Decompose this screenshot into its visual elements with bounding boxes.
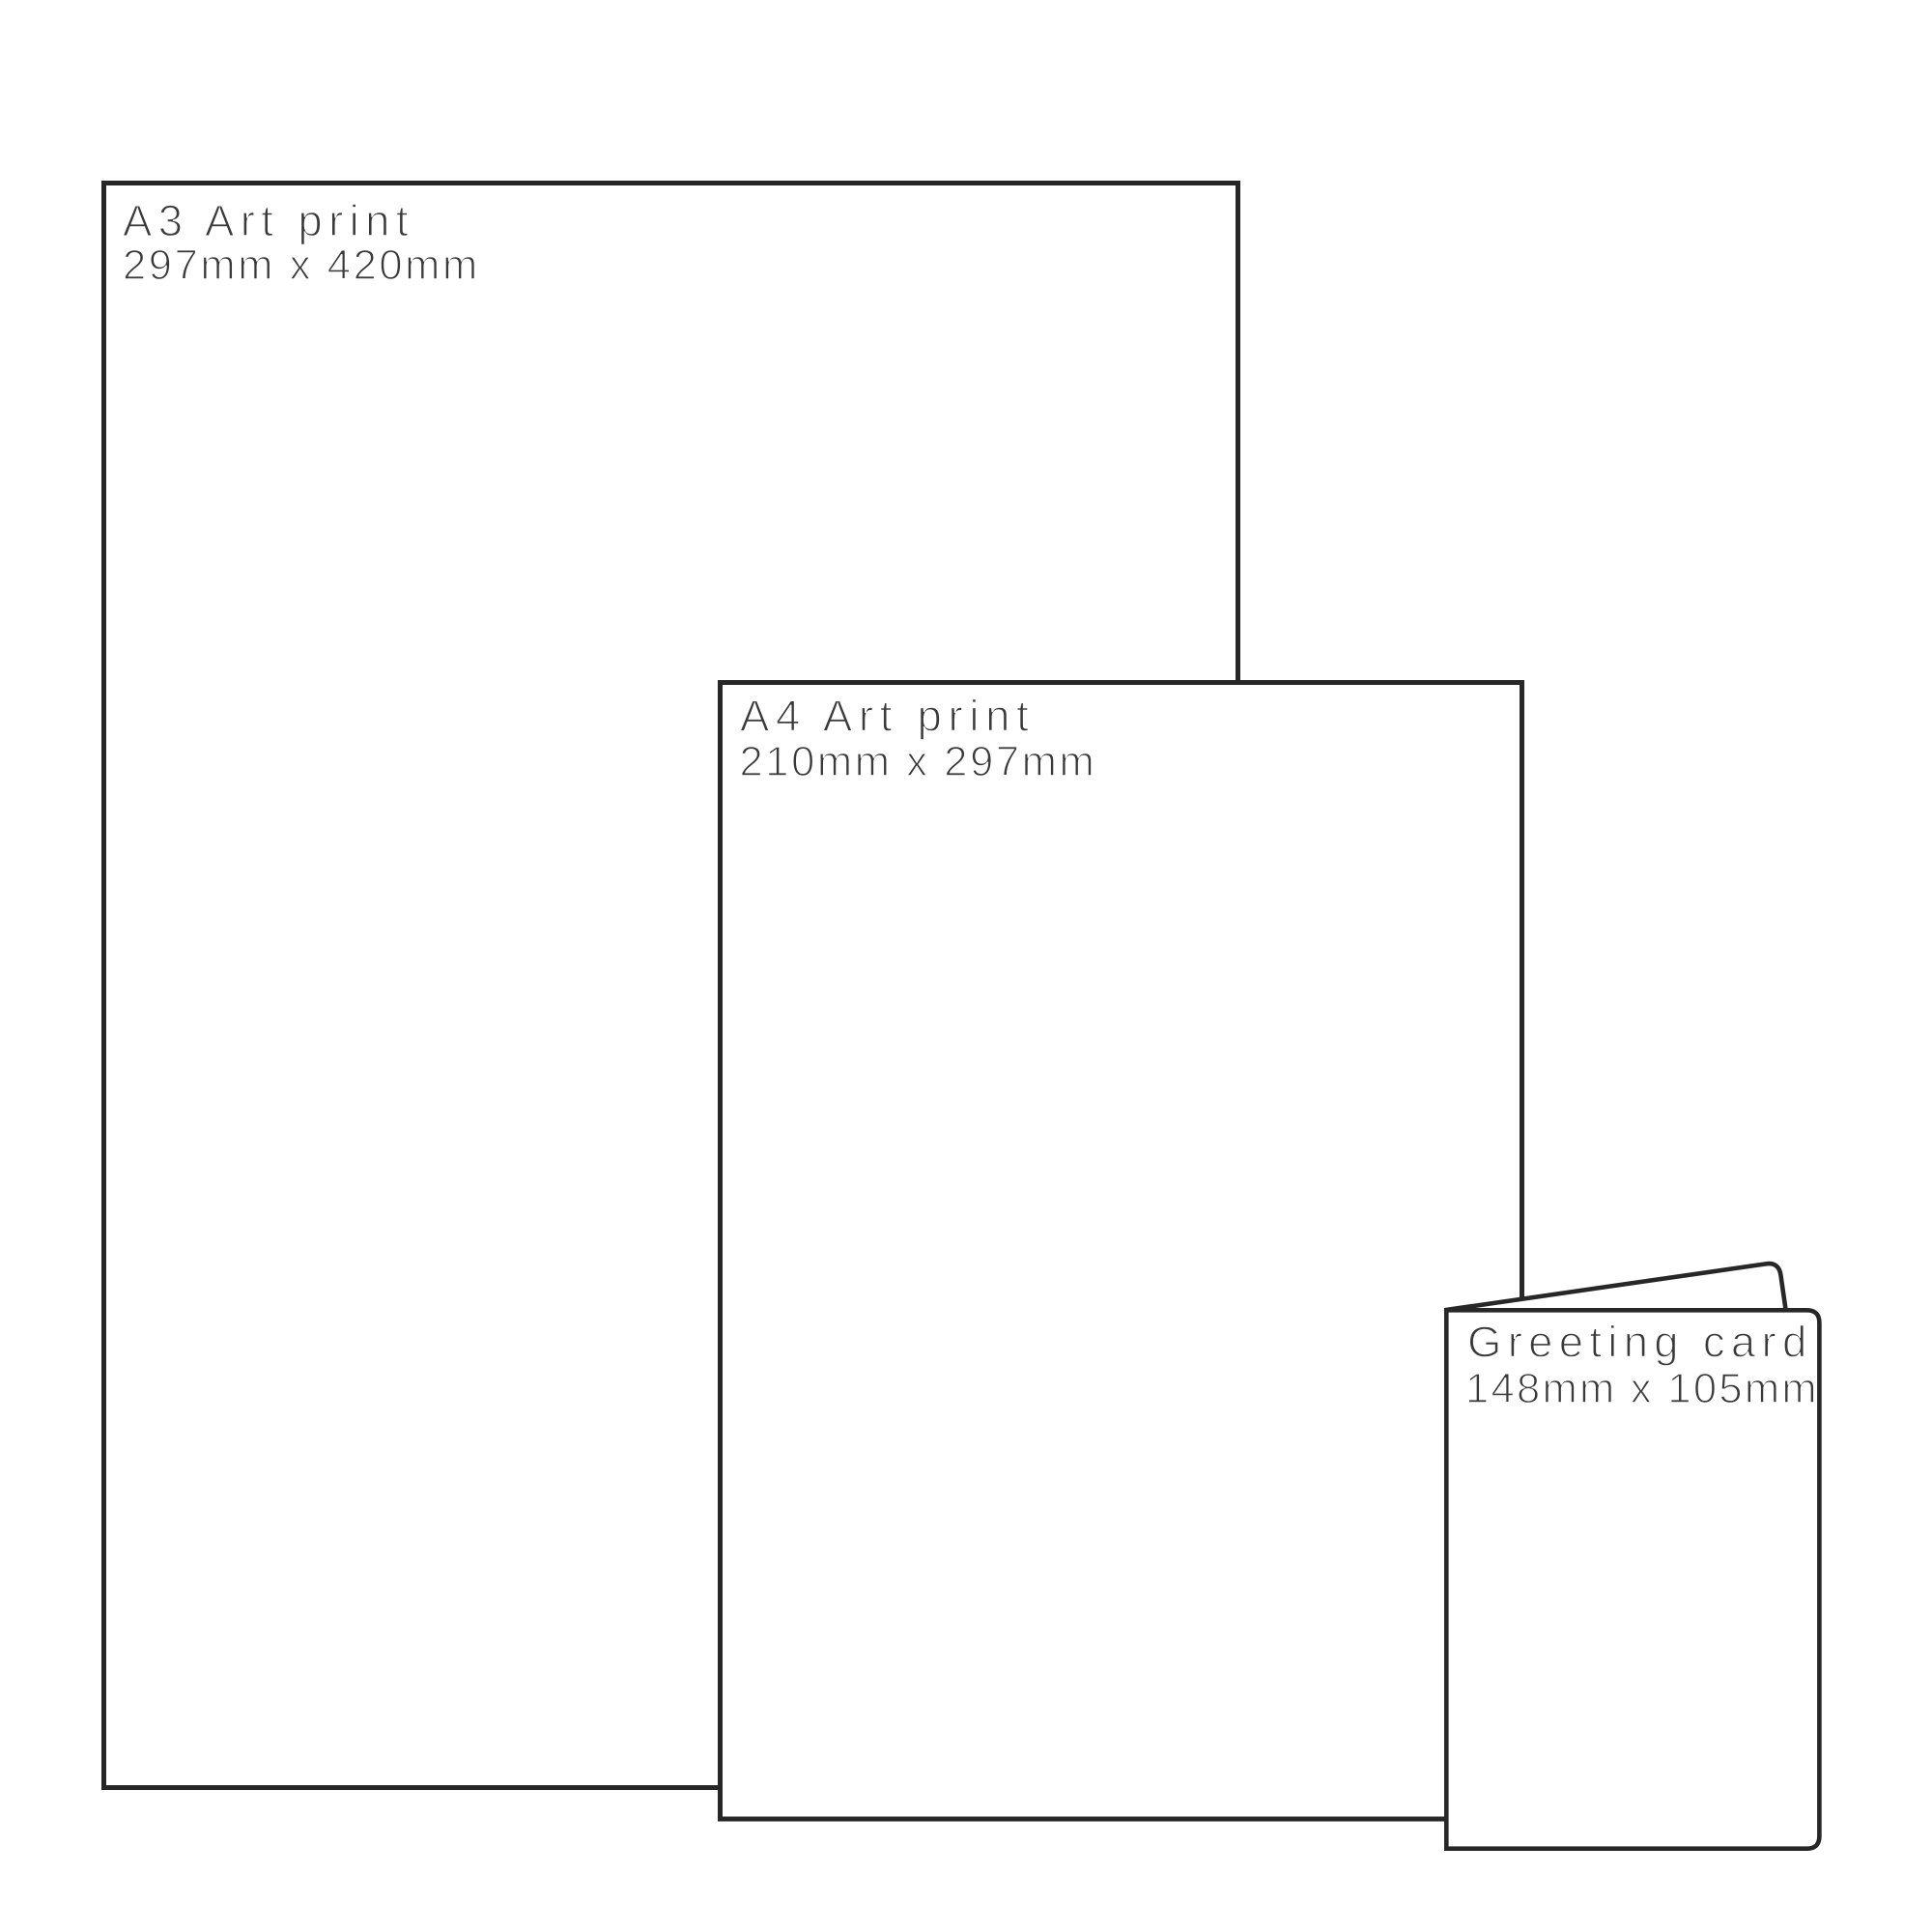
svg-text:Greeting card: Greeting card [1467,1318,1813,1367]
svg-text:148mm x 105mm: 148mm x 105mm [1465,1366,1819,1412]
svg-text:A4 Art print: A4 Art print [740,692,1035,741]
svg-text:210mm x 297mm: 210mm x 297mm [740,739,1097,785]
svg-text:297mm x 420mm: 297mm x 420mm [123,242,480,289]
svg-text:A3 Art print: A3 Art print [123,196,414,245]
